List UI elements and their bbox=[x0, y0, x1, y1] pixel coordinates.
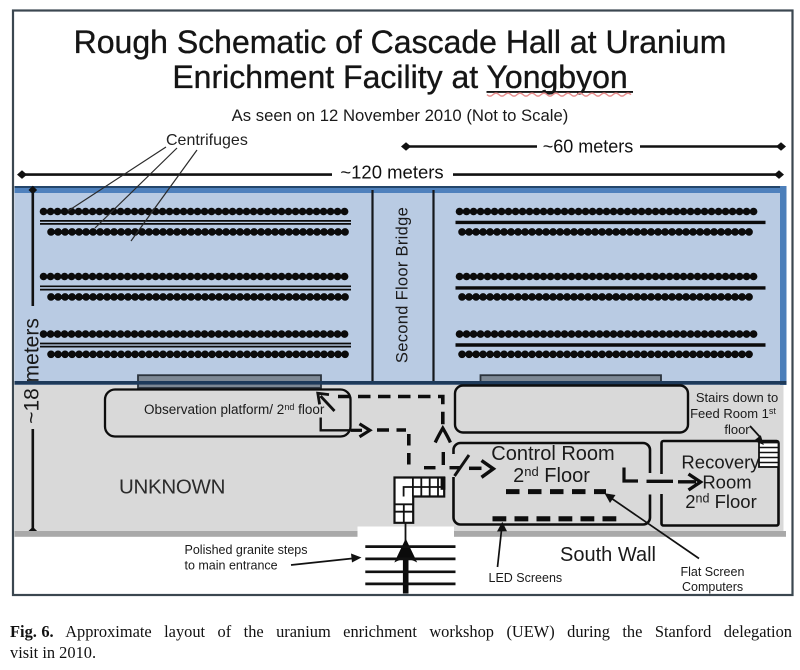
svg-text:Stairs down to: Stairs down to bbox=[696, 390, 778, 405]
svg-text:Centrifuges: Centrifuges bbox=[166, 132, 248, 149]
svg-text:Enrichment Facility at Yongbyo: Enrichment Facility at Yongbyon bbox=[172, 59, 627, 95]
svg-text:Polished granite steps: Polished granite steps bbox=[185, 543, 308, 557]
svg-text:Flat Screen: Flat Screen bbox=[681, 565, 745, 579]
svg-text:Recovery: Recovery bbox=[681, 452, 760, 473]
svg-text:~18 meters: ~18 meters bbox=[21, 318, 44, 424]
svg-text:~60 meters: ~60 meters bbox=[543, 137, 634, 157]
svg-text:Feed Room 1st: Feed Room 1st bbox=[690, 406, 776, 421]
svg-text:Observation platform/ 2nd floo: Observation platform/ 2nd floor bbox=[144, 402, 325, 417]
svg-text:~120 meters: ~120 meters bbox=[340, 162, 443, 183]
svg-text:South Wall: South Wall bbox=[560, 544, 656, 566]
svg-text:Control Room: Control Room bbox=[491, 443, 614, 465]
svg-text:Room: Room bbox=[702, 472, 751, 493]
svg-text:LED Screens: LED Screens bbox=[489, 571, 563, 585]
svg-text:As seen on 12 November 2010 (N: As seen on 12 November 2010 (Not to Scal… bbox=[232, 106, 569, 125]
svg-text:Second Floor Bridge: Second Floor Bridge bbox=[394, 207, 412, 363]
svg-text:Rough Schematic of Cascade Hal: Rough Schematic of Cascade Hall at Urani… bbox=[74, 24, 727, 60]
svg-text:floor: floor bbox=[724, 422, 750, 437]
svg-text:to main entrance: to main entrance bbox=[185, 559, 278, 573]
svg-text:UNKNOWN: UNKNOWN bbox=[119, 476, 225, 499]
svg-text:Computers: Computers bbox=[682, 580, 743, 594]
